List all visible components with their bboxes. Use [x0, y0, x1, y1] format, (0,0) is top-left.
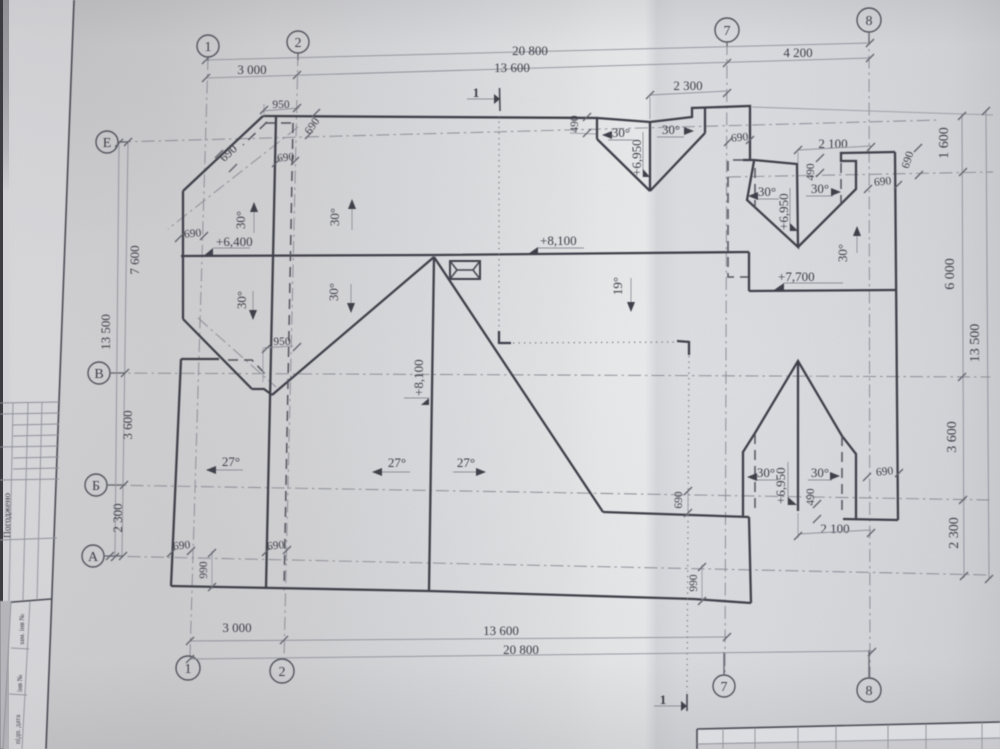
svg-text:+6,950: +6,950 [629, 139, 644, 176]
svg-text:+6,950: +6,950 [773, 467, 788, 504]
svg-text:Погоджено: Погоджено [3, 493, 13, 538]
svg-text:3 000: 3 000 [222, 620, 251, 635]
svg-text:490: 490 [805, 488, 817, 506]
svg-text:30°: 30° [612, 125, 630, 140]
svg-text:А: А [88, 550, 99, 565]
svg-text:30°: 30° [326, 283, 341, 301]
svg-text:2 300: 2 300 [947, 517, 962, 549]
svg-text:13 600: 13 600 [494, 60, 530, 75]
svg-text:990: 990 [198, 561, 210, 579]
svg-text:2: 2 [295, 36, 302, 51]
svg-text:8: 8 [866, 14, 873, 29]
svg-text:+6,400: +6,400 [216, 234, 253, 249]
svg-text:4 200: 4 200 [783, 45, 812, 60]
svg-text:2: 2 [279, 665, 286, 680]
svg-text:+6,950: +6,950 [776, 193, 791, 230]
svg-text:Е: Е [103, 136, 112, 151]
svg-text:30°: 30° [835, 244, 850, 262]
svg-text:690: 690 [183, 227, 202, 241]
svg-text:20 800: 20 800 [512, 43, 548, 58]
svg-text:3 000: 3 000 [237, 62, 266, 77]
svg-text:690: 690 [673, 491, 685, 509]
svg-text:990: 990 [688, 574, 700, 592]
svg-text:690: 690 [172, 539, 191, 553]
svg-text:30°: 30° [327, 208, 342, 226]
svg-text:В: В [94, 367, 103, 382]
svg-text:1: 1 [660, 692, 667, 707]
svg-text:27°: 27° [457, 455, 475, 470]
svg-text:+7,700: +7,700 [778, 269, 815, 284]
svg-text:3 600: 3 600 [120, 410, 135, 439]
svg-text:7: 7 [724, 24, 731, 39]
svg-text:20 800: 20 800 [503, 642, 539, 657]
svg-text:690: 690 [875, 465, 894, 479]
svg-text:13 600: 13 600 [483, 623, 519, 638]
svg-text:30°: 30° [758, 184, 776, 199]
svg-text:30°: 30° [811, 181, 829, 196]
svg-text:30°: 30° [233, 211, 248, 229]
svg-text:Б: Б [92, 479, 100, 494]
svg-text:690: 690 [873, 175, 892, 189]
svg-text:інв №: інв № [16, 674, 24, 692]
svg-text:2 300: 2 300 [110, 503, 125, 532]
svg-text:7 600: 7 600 [127, 245, 142, 274]
svg-text:+8,100: +8,100 [411, 359, 426, 396]
svg-text:1: 1 [473, 85, 480, 100]
svg-text:30°: 30° [234, 291, 249, 309]
svg-text:30°: 30° [662, 122, 680, 137]
svg-text:+8,100: +8,100 [540, 233, 577, 248]
svg-text:13 500: 13 500 [98, 314, 113, 350]
svg-text:7: 7 [721, 680, 728, 695]
svg-text:1: 1 [205, 40, 212, 55]
svg-text:490: 490 [805, 163, 817, 181]
svg-text:2 100: 2 100 [820, 521, 849, 536]
svg-text:690: 690 [266, 539, 285, 553]
svg-text:13 500: 13 500 [968, 324, 983, 363]
svg-text:зам. інв №: зам. інв № [18, 613, 26, 645]
svg-text:3 600: 3 600 [945, 421, 960, 453]
svg-text:1 600: 1 600 [937, 127, 952, 159]
svg-text:30°: 30° [811, 465, 829, 480]
svg-text:6 000: 6 000 [943, 258, 958, 290]
svg-text:19°: 19° [610, 277, 625, 295]
svg-text:8: 8 [866, 684, 873, 699]
svg-text:490: 490 [569, 115, 581, 133]
svg-text:2 300: 2 300 [673, 78, 702, 93]
svg-text:27°: 27° [222, 454, 240, 469]
svg-text:27°: 27° [388, 455, 406, 470]
svg-text:підп. дата: підп. дата [14, 714, 22, 744]
svg-text:1: 1 [185, 662, 192, 677]
